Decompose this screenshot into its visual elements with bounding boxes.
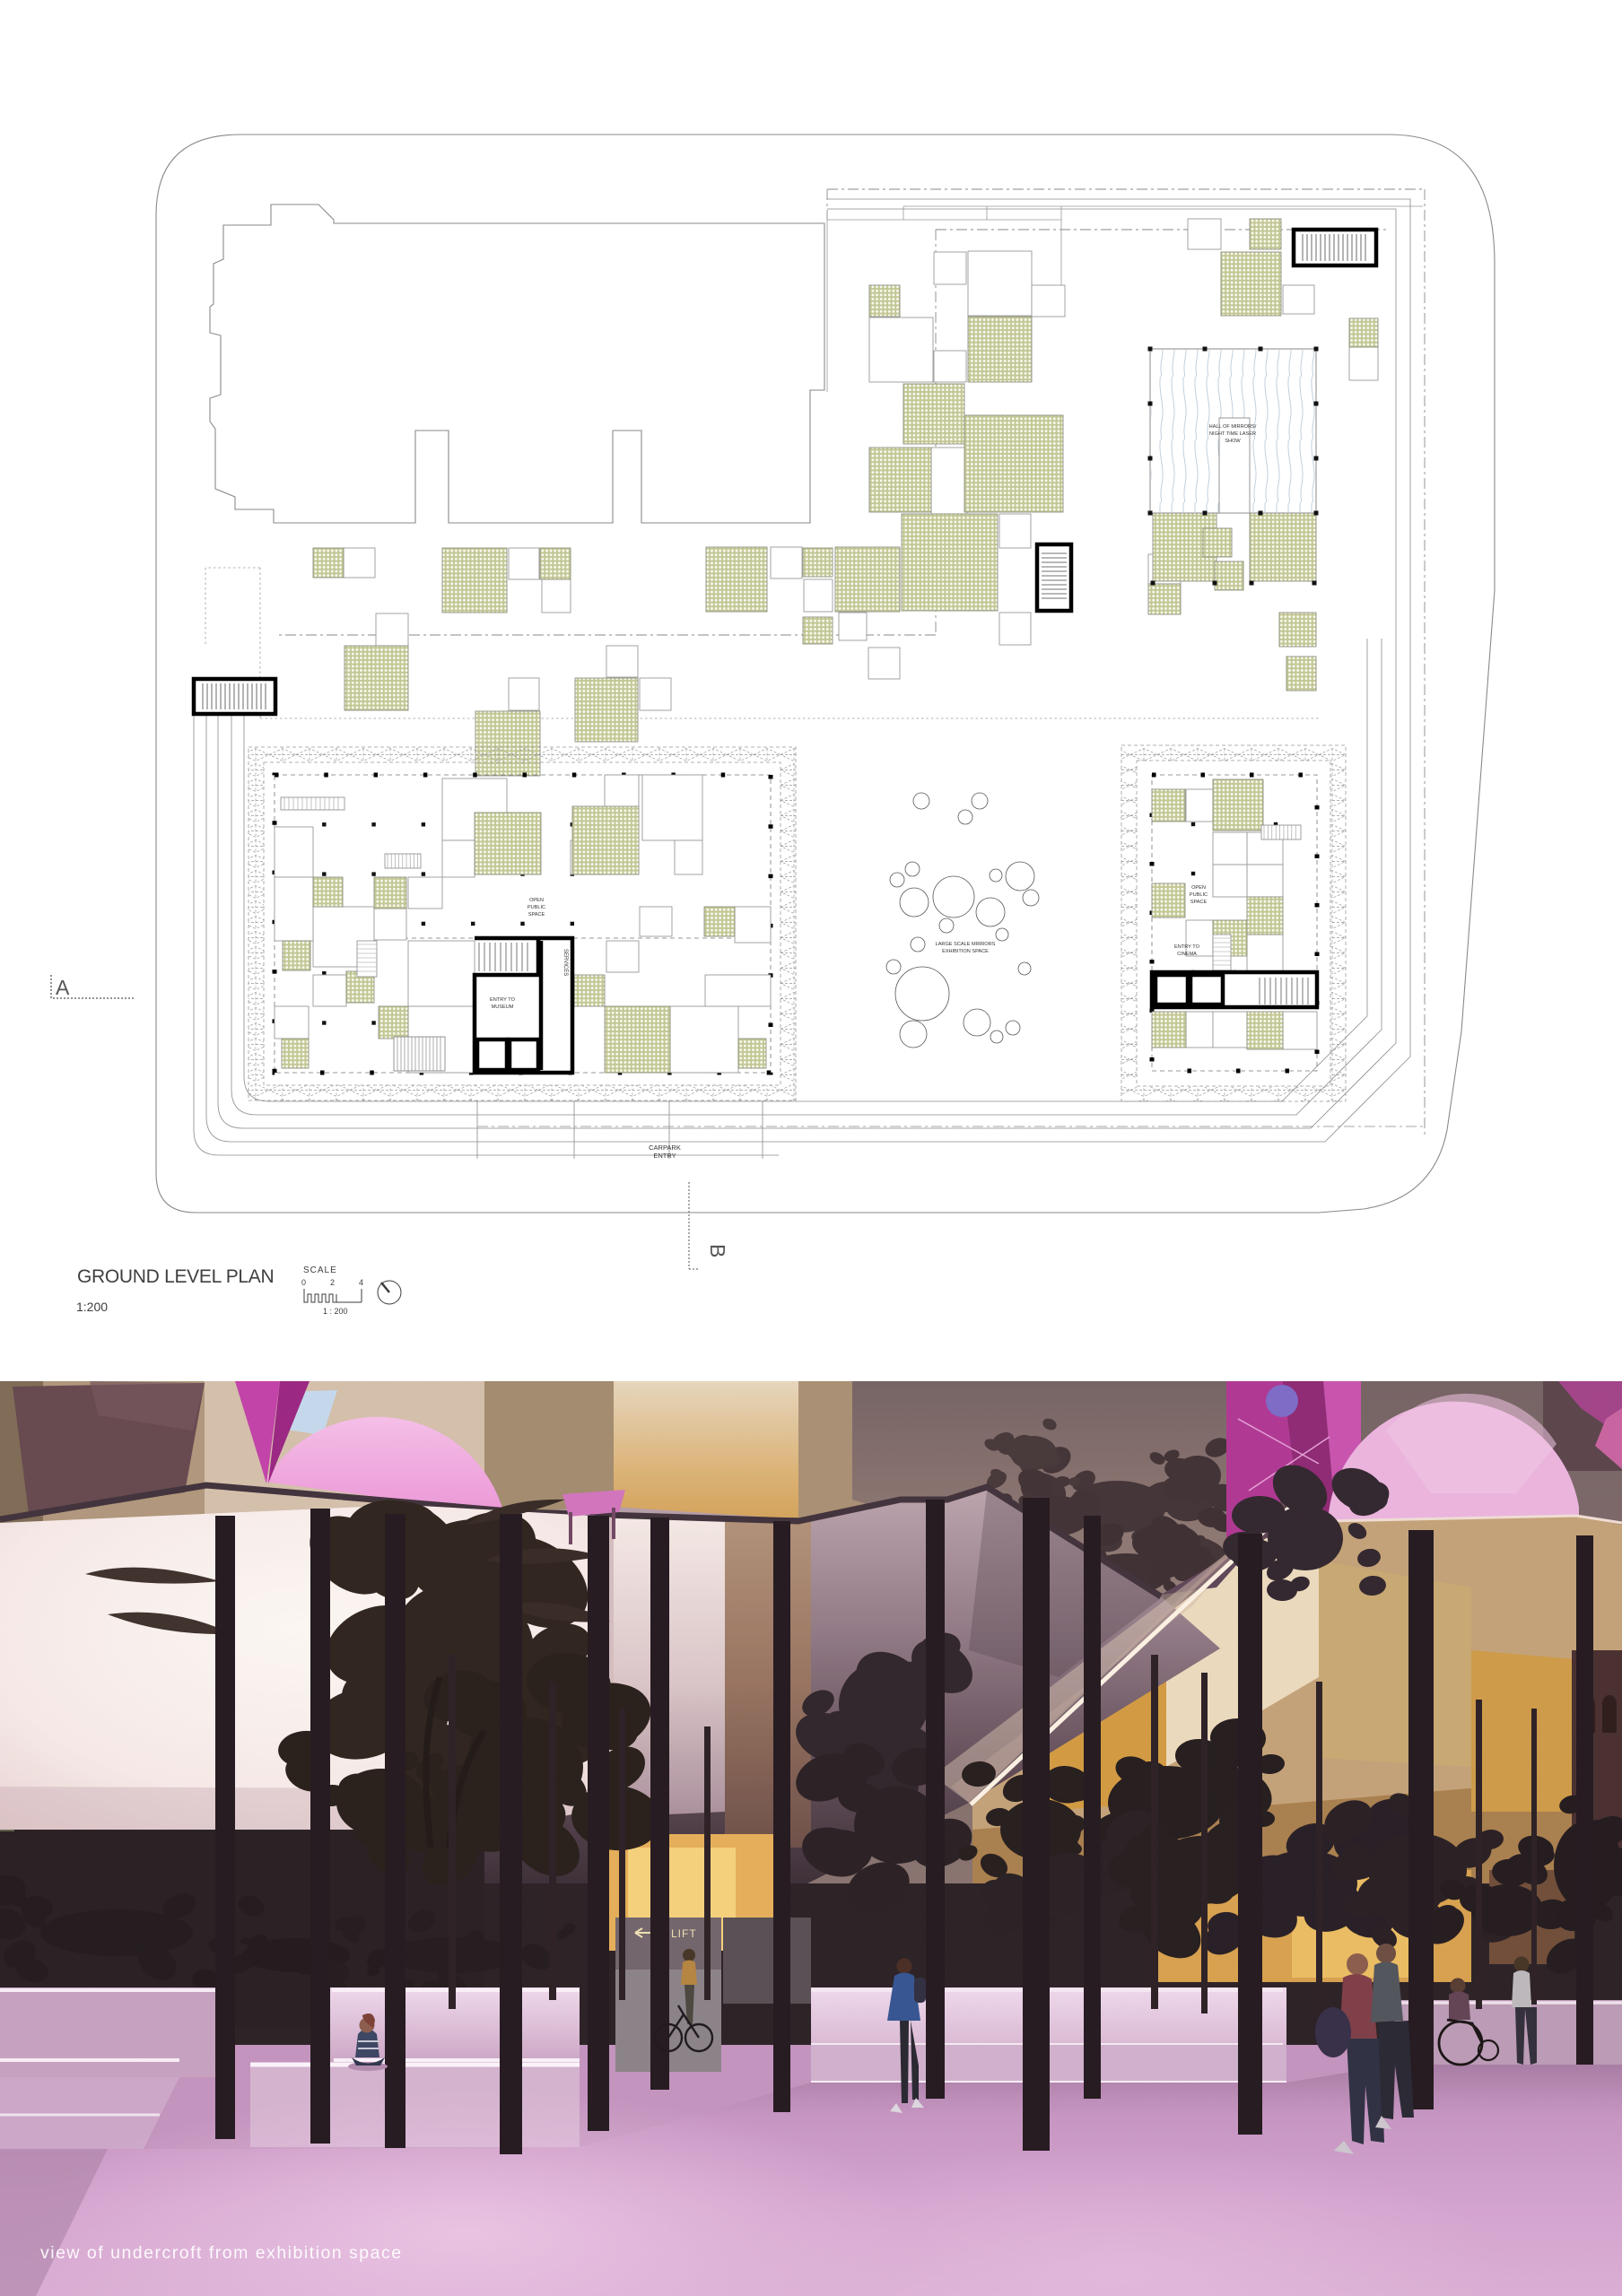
svg-text:SPACE: SPACE xyxy=(1190,900,1208,905)
svg-text:ENTRY: ENTRY xyxy=(653,1152,676,1160)
svg-text:PUBLIC: PUBLIC xyxy=(1190,892,1208,898)
svg-text:LARGE SCALE MIRRORS: LARGE SCALE MIRRORS xyxy=(936,942,996,947)
svg-text:OPEN: OPEN xyxy=(1191,885,1206,891)
svg-text:2: 2 xyxy=(330,1278,335,1287)
svg-text:4: 4 xyxy=(359,1278,363,1287)
svg-text:NIGHT TIME LASER: NIGHT TIME LASER xyxy=(1209,431,1256,437)
svg-text:EXHIBITION SPACE: EXHIBITION SPACE xyxy=(942,949,989,954)
svg-text:SHOW: SHOW xyxy=(1225,439,1241,444)
svg-text:OPEN: OPEN xyxy=(529,898,544,903)
svg-text:HALL OF MIRRORS/: HALL OF MIRRORS/ xyxy=(1209,424,1257,430)
svg-text:ENTRY TO: ENTRY TO xyxy=(490,997,516,1003)
svg-text:CINEMA: CINEMA xyxy=(1177,952,1197,957)
svg-text:SCALE: SCALE xyxy=(303,1265,337,1275)
svg-text:ENTRY TO: ENTRY TO xyxy=(1174,944,1200,950)
svg-text:1 : 200: 1 : 200 xyxy=(323,1307,348,1316)
svg-text:MUSEUM: MUSEUM xyxy=(492,1004,514,1010)
svg-text:PUBLIC: PUBLIC xyxy=(528,905,545,910)
svg-text:SERVICES: SERVICES xyxy=(562,949,568,976)
svg-text:0: 0 xyxy=(301,1278,306,1287)
svg-text:CARPARK: CARPARK xyxy=(649,1144,681,1152)
svg-text:GROUND LEVEL PLAN: GROUND LEVEL PLAN xyxy=(77,1266,274,1287)
svg-text:A: A xyxy=(56,976,70,999)
svg-text:view of undercroft from exhibi: view of undercroft from exhibition space xyxy=(40,2243,403,2263)
svg-text:SPACE: SPACE xyxy=(528,912,545,918)
svg-text:1:200: 1:200 xyxy=(76,1300,108,1314)
svg-text:B: B xyxy=(706,1244,729,1257)
